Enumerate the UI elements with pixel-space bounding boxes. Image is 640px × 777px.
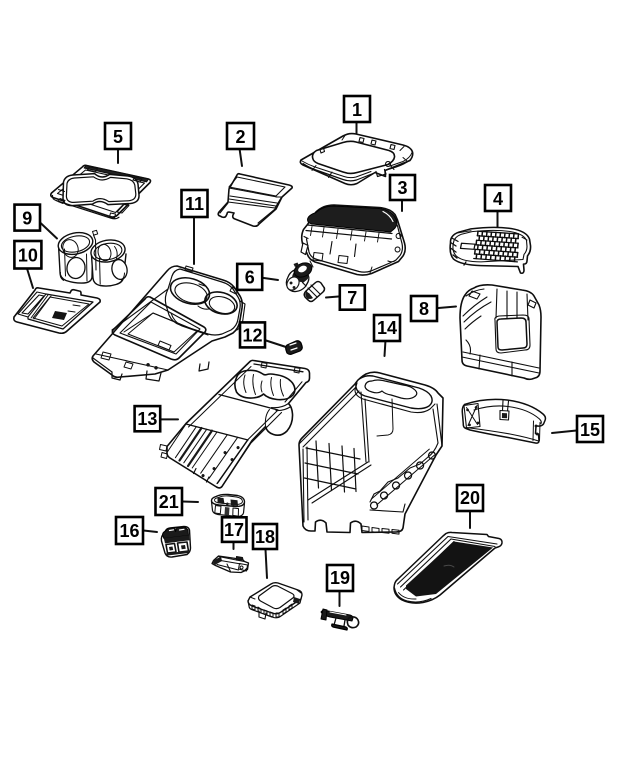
svg-text:3: 3 [397,178,407,198]
svg-text:13: 13 [137,409,157,429]
svg-text:15: 15 [580,420,600,440]
svg-text:21: 21 [159,492,179,512]
svg-text:12: 12 [242,325,262,345]
svg-text:18: 18 [255,527,275,547]
svg-text:11: 11 [185,194,204,214]
svg-text:6: 6 [245,267,255,287]
svg-text:2: 2 [235,127,245,147]
svg-text:20: 20 [460,488,480,508]
svg-text:19: 19 [330,568,350,588]
svg-text:17: 17 [224,520,244,540]
svg-text:4: 4 [493,189,503,209]
svg-text:5: 5 [113,127,123,147]
svg-text:7: 7 [347,288,357,308]
svg-text:9: 9 [22,208,32,228]
svg-text:1: 1 [352,100,362,120]
svg-text:16: 16 [119,521,139,541]
svg-text:8: 8 [419,299,429,319]
svg-text:10: 10 [18,246,38,266]
svg-text:14: 14 [377,318,397,338]
